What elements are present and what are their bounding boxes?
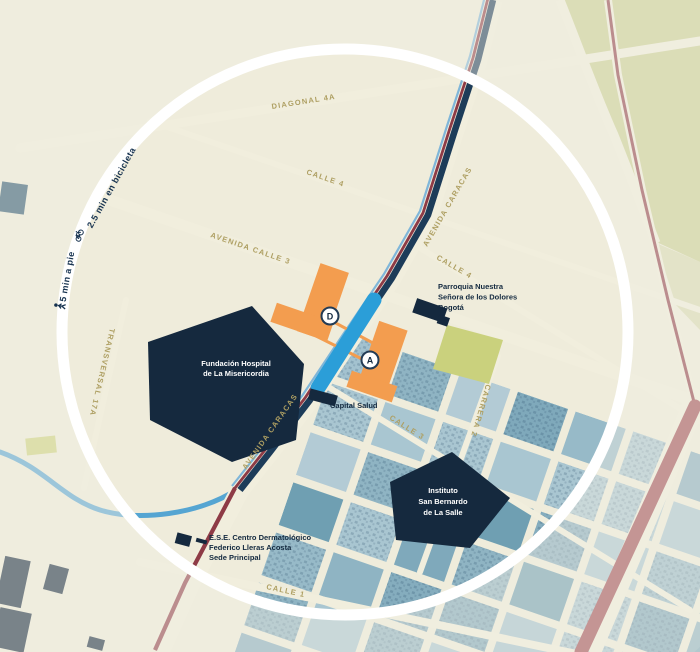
hospital-label-line2: de La Misericordia xyxy=(203,369,270,378)
capital-salud-label: Capital Salud xyxy=(330,401,378,410)
dermatologico-label-line2: Federico Lleras Acosta xyxy=(209,543,292,552)
parroquia-label-line2: Señora de los Dolores xyxy=(438,293,517,302)
instituto-label-line3: de La Salle xyxy=(423,508,462,517)
parroquia-label-line1: Parroquia Nuestra xyxy=(438,282,504,291)
dermatologico-label-line3: Sede Principal xyxy=(209,553,261,562)
station-marker-a[interactable]: A xyxy=(362,352,379,369)
station-marker-d[interactable]: D xyxy=(322,308,339,325)
instituto-label-line2: San Bernardo xyxy=(418,497,468,506)
parroquia-label-line3: Bogotá xyxy=(438,303,465,312)
map-stage: 5 min a pie 2.5 min en bicicleta DIAGONA… xyxy=(0,0,700,652)
instituto-label-line1: Instituto xyxy=(428,486,458,495)
map-canvas: 5 min a pie 2.5 min en bicicleta DIAGONA… xyxy=(0,0,700,652)
dermatologico-label-line1: E.S.E. Centro Dermatológico xyxy=(209,533,312,542)
marker-a-letter: A xyxy=(367,355,374,365)
hospital-label-line1: Fundación Hospital xyxy=(201,359,271,368)
marker-d-letter: D xyxy=(327,311,334,321)
